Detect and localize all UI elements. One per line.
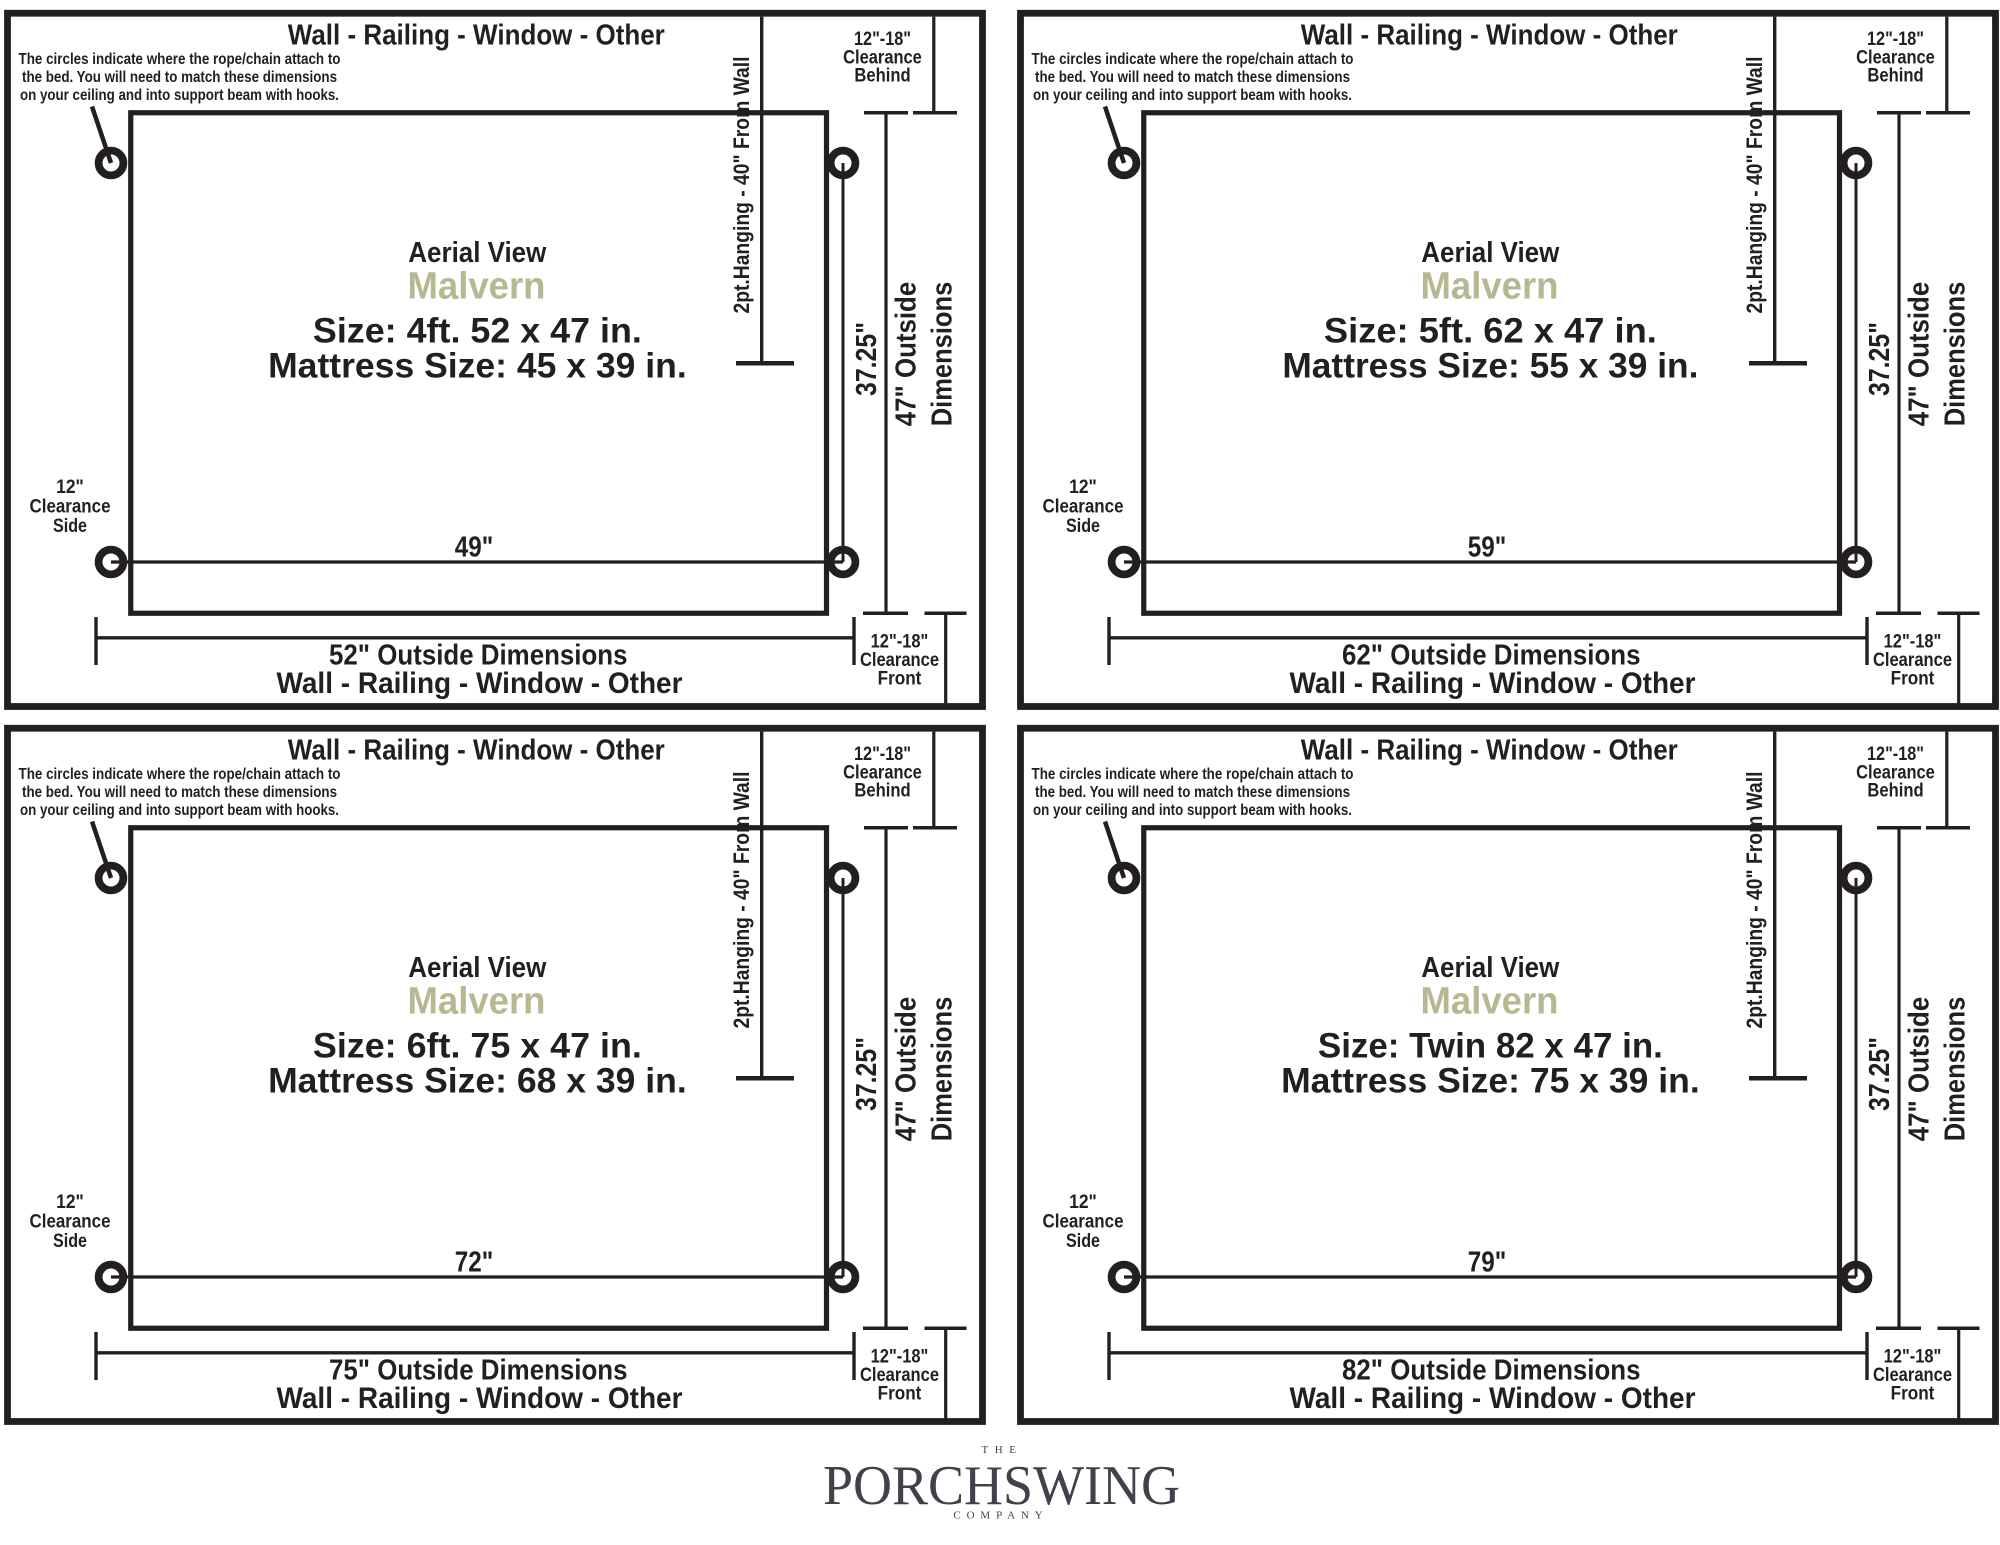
svg-text:PORCHSWING: PORCHSWING	[823, 1455, 1180, 1517]
svg-text:Mattress Size: 55 x 39 in.: Mattress Size: 55 x 39 in.	[1282, 347, 1698, 386]
svg-text:Behind: Behind	[854, 781, 910, 802]
svg-text:Size: 5ft. 62 x 47 in.: Size: 5ft. 62 x 47 in.	[1324, 311, 1657, 350]
svg-text:Dimensions: Dimensions	[1940, 997, 1972, 1142]
svg-text:Malvern: Malvern	[408, 266, 546, 308]
svg-text:Aerial View: Aerial View	[408, 237, 547, 269]
svg-text:Clearance: Clearance	[1043, 497, 1124, 518]
svg-text:Wall - Railing - Window - Othe: Wall - Railing - Window - Other	[1290, 667, 1696, 700]
svg-text:Wall - Railing - Window - Othe: Wall - Railing - Window - Other	[277, 1382, 683, 1415]
svg-text:on your ceiling and into suppo: on your ceiling and into support beam wi…	[1033, 87, 1352, 104]
svg-text:Aerial View: Aerial View	[1421, 952, 1560, 984]
svg-text:the bed. You will need to matc: the bed. You will need to match these di…	[22, 69, 337, 86]
svg-text:12": 12"	[56, 1192, 84, 1213]
svg-text:37.25": 37.25"	[1864, 1037, 1896, 1111]
svg-text:the bed. You will need to matc: the bed. You will need to match these di…	[1035, 784, 1350, 801]
svg-text:Malvern: Malvern	[408, 981, 546, 1023]
svg-text:Wall - Railing - Window - Othe: Wall - Railing - Window - Other	[1290, 1382, 1696, 1415]
svg-text:The circles indicate where the: The circles indicate where the rope/chai…	[1032, 766, 1354, 783]
svg-text:COMPANY: COMPANY	[953, 1510, 1048, 1522]
svg-text:Front: Front	[878, 669, 922, 690]
svg-text:47" Outside: 47" Outside	[891, 997, 923, 1142]
svg-text:on your ceiling and into suppo: on your ceiling and into support beam wi…	[20, 87, 339, 104]
svg-text:2pt.Hanging - 40" From Wall: 2pt.Hanging - 40" From Wall	[729, 772, 754, 1029]
svg-text:2pt.Hanging - 40" From Wall: 2pt.Hanging - 40" From Wall	[729, 57, 754, 314]
svg-text:12": 12"	[56, 477, 84, 498]
svg-text:Dimensions: Dimensions	[927, 997, 959, 1142]
svg-text:Dimensions: Dimensions	[1940, 282, 1972, 427]
svg-text:Front: Front	[878, 1384, 922, 1405]
svg-text:47" Outside: 47" Outside	[1904, 997, 1936, 1142]
svg-text:Aerial View: Aerial View	[408, 952, 547, 984]
svg-text:Wall - Railing - Window - Othe: Wall - Railing - Window - Other	[288, 19, 665, 51]
svg-text:49": 49"	[455, 532, 494, 564]
svg-text:Mattress Size: 75 x 39 in.: Mattress Size: 75 x 39 in.	[1281, 1062, 1700, 1101]
svg-text:the bed. You will need to matc: the bed. You will need to match these di…	[1035, 69, 1350, 86]
svg-text:59": 59"	[1468, 532, 1507, 564]
svg-text:The circles indicate where the: The circles indicate where the rope/chai…	[1032, 51, 1354, 68]
svg-text:37.25": 37.25"	[1864, 322, 1896, 396]
svg-text:Clearance: Clearance	[30, 497, 111, 518]
svg-text:Clearance: Clearance	[30, 1212, 111, 1233]
svg-text:2pt.Hanging - 40" From Wall: 2pt.Hanging - 40" From Wall	[1742, 772, 1767, 1029]
svg-text:The circles indicate where the: The circles indicate where the rope/chai…	[19, 51, 341, 68]
svg-text:12": 12"	[1069, 1192, 1097, 1213]
svg-text:Behind: Behind	[854, 66, 910, 87]
svg-text:Wall - Railing - Window - Othe: Wall - Railing - Window - Other	[288, 734, 665, 766]
svg-text:37.25": 37.25"	[851, 1037, 883, 1111]
svg-text:47" Outside: 47" Outside	[891, 282, 923, 427]
svg-text:Size: 6ft. 75 x 47 in.: Size: 6ft. 75 x 47 in.	[313, 1026, 642, 1065]
svg-text:Side: Side	[1066, 516, 1100, 537]
svg-text:Front: Front	[1891, 1384, 1935, 1405]
svg-text:The circles indicate where the: The circles indicate where the rope/chai…	[19, 766, 341, 783]
svg-text:the bed. You will need to matc: the bed. You will need to match these di…	[22, 784, 337, 801]
svg-text:Behind: Behind	[1867, 781, 1923, 802]
svg-text:47" Outside: 47" Outside	[1904, 282, 1936, 427]
svg-text:Size: Twin 82 x 47 in.: Size: Twin 82 x 47 in.	[1318, 1026, 1663, 1065]
svg-text:37.25": 37.25"	[851, 322, 883, 396]
svg-text:Mattress Size: 45 x 39 in.: Mattress Size: 45 x 39 in.	[268, 347, 687, 386]
svg-text:Wall - Railing - Window - Othe: Wall - Railing - Window - Other	[277, 667, 683, 700]
svg-text:Malvern: Malvern	[1421, 981, 1559, 1023]
svg-text:on your ceiling and into suppo: on your ceiling and into support beam wi…	[20, 802, 339, 819]
svg-text:Size: 4ft. 52 x 47 in.: Size: 4ft. 52 x 47 in.	[313, 311, 642, 350]
svg-text:Dimensions: Dimensions	[927, 282, 959, 427]
svg-text:Wall - Railing - Window - Othe: Wall - Railing - Window - Other	[1301, 734, 1678, 766]
svg-text:Aerial View: Aerial View	[1421, 237, 1560, 269]
svg-text:Mattress Size: 68 x 39 in.: Mattress Size: 68 x 39 in.	[268, 1062, 687, 1101]
svg-text:Wall - Railing - Window - Othe: Wall - Railing - Window - Other	[1301, 19, 1678, 51]
svg-text:Clearance: Clearance	[1043, 1212, 1124, 1233]
svg-text:2pt.Hanging - 40" From Wall: 2pt.Hanging - 40" From Wall	[1742, 57, 1767, 314]
svg-text:Side: Side	[53, 1231, 87, 1252]
svg-text:Malvern: Malvern	[1421, 266, 1559, 308]
svg-text:on your ceiling and into suppo: on your ceiling and into support beam wi…	[1033, 802, 1352, 819]
svg-text:79": 79"	[1468, 1247, 1507, 1279]
svg-text:Side: Side	[1066, 1231, 1100, 1252]
svg-text:Front: Front	[1891, 669, 1935, 690]
svg-text:Behind: Behind	[1867, 66, 1923, 87]
svg-text:72": 72"	[455, 1247, 494, 1279]
svg-text:12": 12"	[1069, 477, 1097, 498]
svg-text:Side: Side	[53, 516, 87, 537]
